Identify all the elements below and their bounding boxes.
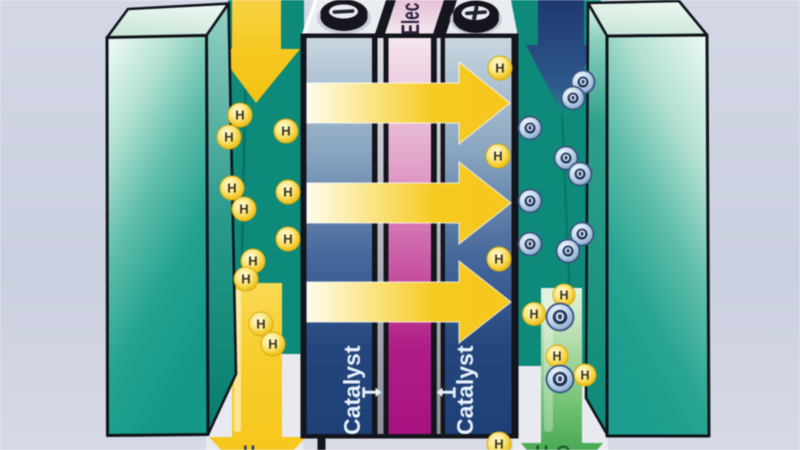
svg-text:H: H	[494, 252, 503, 267]
svg-text:H: H	[281, 124, 290, 139]
svg-text:H: H	[552, 350, 561, 364]
svg-text:O: O	[563, 153, 570, 163]
svg-text:O: O	[556, 374, 565, 386]
svg-text:O: O	[527, 123, 534, 133]
svg-text:Elec: Elec	[397, 3, 425, 35]
svg-text:H: H	[243, 442, 255, 450]
svg-text:H: H	[283, 232, 292, 247]
svg-text:H: H	[248, 254, 257, 269]
svg-text:O: O	[577, 169, 584, 179]
svg-text:O: O	[527, 196, 534, 206]
svg-text:O: O	[579, 229, 586, 239]
svg-text:H: H	[241, 272, 250, 287]
svg-text:O: O	[570, 93, 577, 103]
svg-text:H: H	[224, 130, 233, 145]
svg-text:H: H	[493, 149, 502, 164]
svg-text:H: H	[580, 369, 589, 383]
svg-text:H: H	[235, 108, 244, 123]
svg-text:O: O	[565, 246, 572, 256]
svg-text:H: H	[495, 61, 504, 76]
svg-text:H: H	[494, 437, 503, 450]
svg-text:H: H	[239, 202, 248, 217]
svg-text:O: O	[527, 239, 534, 249]
svg-text:H: H	[256, 317, 265, 332]
svg-text:H: H	[529, 308, 538, 322]
svg-text:Catalyst: Catalyst	[452, 345, 478, 435]
svg-text:H: H	[559, 289, 568, 303]
svg-text:H: H	[227, 181, 236, 196]
svg-text:H: H	[283, 185, 292, 200]
svg-text:O: O	[580, 77, 587, 87]
svg-text:O: O	[556, 312, 565, 324]
svg-text:H: H	[268, 337, 277, 352]
svg-text:Catalyst: Catalyst	[339, 345, 365, 435]
